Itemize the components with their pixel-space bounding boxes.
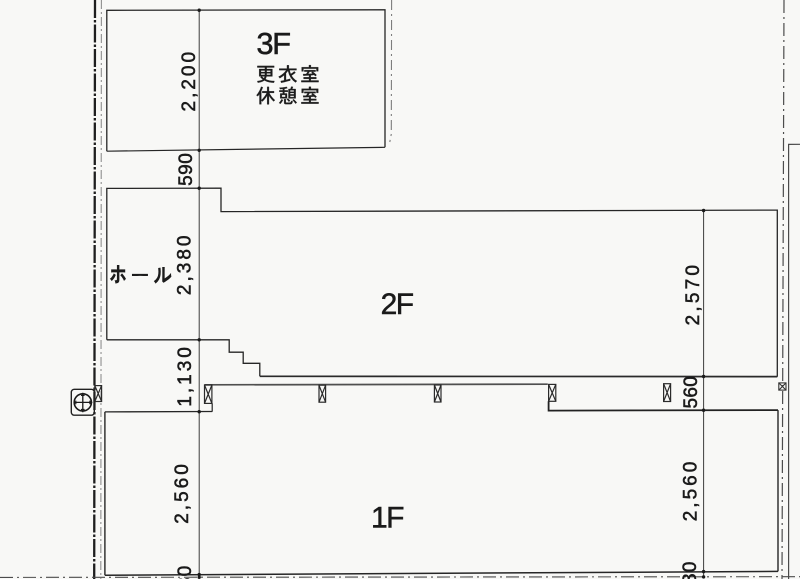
svg-text:2F: 2F [381, 288, 414, 321]
svg-text:2,560: 2,560 [172, 461, 193, 524]
svg-text:2,570: 2,570 [683, 262, 704, 326]
svg-text:2,560: 2,560 [681, 459, 702, 522]
svg-text:2,380: 2,380 [175, 233, 196, 296]
svg-text:1,130: 1,130 [175, 344, 196, 407]
svg-text:3F: 3F [256, 26, 290, 61]
svg-text:560: 560 [681, 376, 702, 409]
svg-text:2,200: 2,200 [179, 49, 200, 112]
svg-text:590: 590 [176, 153, 197, 186]
svg-text:30: 30 [175, 565, 196, 579]
svg-text:30: 30 [680, 560, 701, 579]
svg-text:1F: 1F [371, 501, 404, 534]
